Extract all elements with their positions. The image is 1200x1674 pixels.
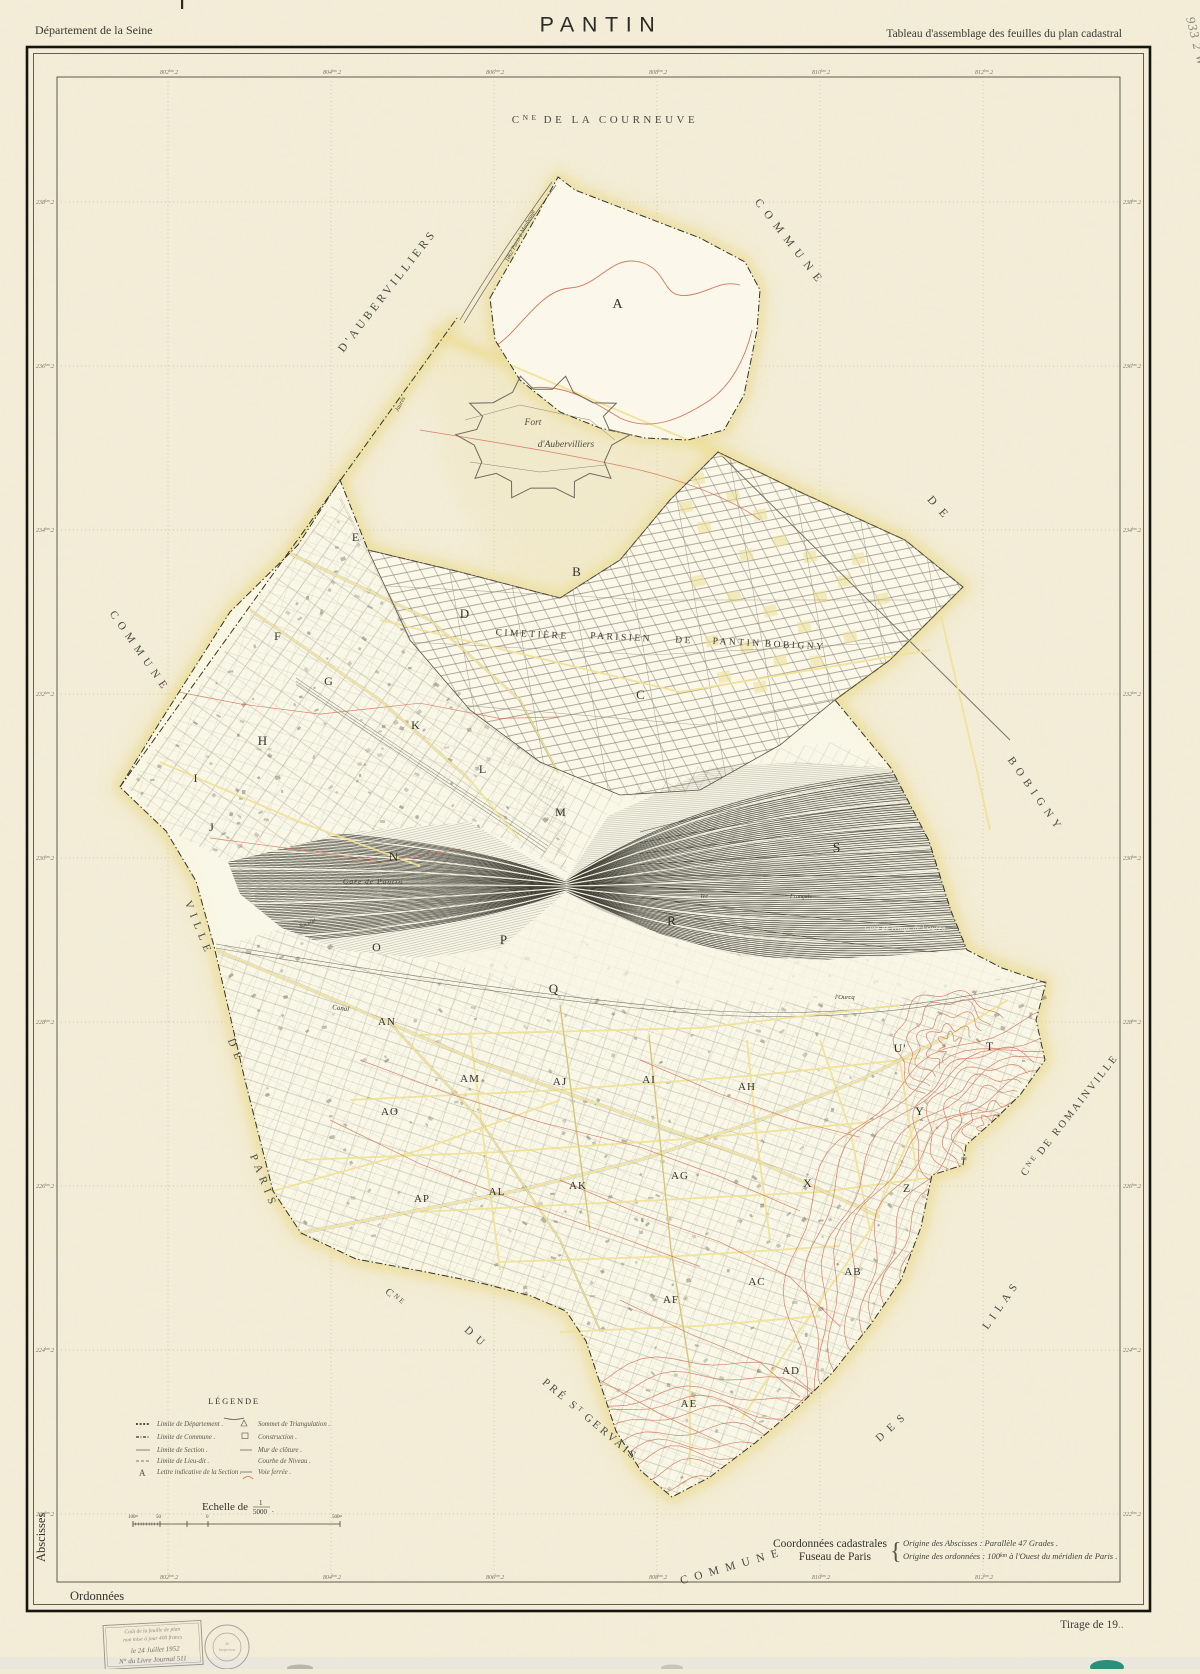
svg-text:LÉGENDE: LÉGENDE bbox=[208, 1396, 260, 1406]
svg-text:Limite de Lieu-dit .: Limite de Lieu-dit . bbox=[156, 1458, 209, 1465]
svg-text:Origine des Abscisses : Parall: Origine des Abscisses : Parallèle 47 Gra… bbox=[903, 1538, 1058, 1548]
svg-text:F: F bbox=[274, 629, 282, 643]
svg-text:J: J bbox=[209, 820, 215, 834]
svg-text:Y: Y bbox=[915, 1104, 925, 1118]
svg-text:B: B bbox=[572, 564, 582, 579]
svg-text:D: D bbox=[460, 606, 470, 621]
svg-text:U': U' bbox=[894, 1041, 907, 1055]
svg-text:2e: 2e bbox=[225, 1641, 229, 1646]
svg-text:DE: DE bbox=[675, 636, 693, 647]
svg-text:AB: AB bbox=[844, 1266, 861, 1278]
svg-text:A: A bbox=[139, 1468, 146, 1478]
svg-text:E: E bbox=[352, 530, 360, 544]
svg-text:AM: AM bbox=[460, 1073, 480, 1085]
svg-text:5000: 5000 bbox=[253, 1508, 268, 1516]
svg-text:PANTIN: PANTIN bbox=[540, 13, 663, 37]
svg-text:P: P bbox=[500, 932, 508, 947]
svg-text:Coordonnées cadastrales: Coordonnées cadastrales bbox=[773, 1538, 888, 1550]
svg-text:Ordonnées: Ordonnées bbox=[70, 1589, 124, 1603]
svg-text:Fort: Fort bbox=[524, 418, 542, 428]
svg-text:50: 50 bbox=[156, 1515, 162, 1520]
svg-text:Mur de clôture .: Mur de clôture . bbox=[257, 1447, 302, 1454]
svg-text:Fuseau de Paris: Fuseau de Paris bbox=[799, 1551, 872, 1563]
svg-text:S: S bbox=[833, 841, 842, 856]
svg-text:Français: Français bbox=[789, 894, 812, 900]
svg-text:Lettre indicative de la Sectio: Lettre indicative de la Section . bbox=[156, 1469, 242, 1476]
svg-text:AI: AI bbox=[642, 1074, 656, 1086]
svg-text:AL: AL bbox=[489, 1186, 506, 1198]
svg-text:AE: AE bbox=[681, 1398, 698, 1410]
svg-text:Sommet de Triangulation .: Sommet de Triangulation . bbox=[258, 1421, 330, 1428]
svg-text:Courbe de Niveau .: Courbe de Niveau . bbox=[258, 1458, 311, 1465]
svg-text:O: O bbox=[372, 940, 382, 954]
svg-text:AK: AK bbox=[569, 1180, 587, 1192]
svg-text:AH: AH bbox=[738, 1081, 756, 1093]
svg-text:H: H bbox=[258, 733, 268, 748]
svg-text:Tirage de 19..: Tirage de 19.. bbox=[1060, 1619, 1124, 1631]
svg-text:Q: Q bbox=[549, 981, 559, 996]
svg-text:Abscisses: Abscisses bbox=[34, 1513, 48, 1562]
svg-text:Gare de Triage de l'Ourcq: Gare de Triage de l'Ourcq bbox=[865, 925, 946, 932]
svg-text:T: T bbox=[986, 1039, 994, 1053]
svg-text:Département de la Seine: Département de la Seine bbox=[35, 23, 153, 37]
svg-text:Construction .: Construction . bbox=[258, 1434, 297, 1441]
svg-text:Gare de Pantin: Gare de Pantin bbox=[343, 877, 403, 886]
svg-text:K: K bbox=[411, 718, 421, 732]
svg-text:AF: AF bbox=[663, 1294, 679, 1306]
svg-text:AO: AO bbox=[381, 1106, 399, 1118]
svg-text:d'Aubervilliers: d'Aubervilliers bbox=[538, 440, 595, 450]
svg-text:Limite de Département .: Limite de Département . bbox=[156, 1421, 223, 1428]
svg-text:C: C bbox=[636, 687, 646, 702]
svg-text:M: M bbox=[555, 805, 567, 819]
svg-text:X: X bbox=[803, 1176, 813, 1190]
svg-text:{: { bbox=[890, 1539, 902, 1565]
svg-text:N: N bbox=[389, 849, 399, 864]
svg-text:A: A bbox=[612, 297, 623, 312]
svg-text:AG: AG bbox=[671, 1170, 689, 1182]
svg-text:AP: AP bbox=[414, 1193, 430, 1205]
svg-text:G: G bbox=[324, 674, 334, 688]
svg-text:.: . bbox=[272, 1506, 274, 1514]
svg-text:Voie ferrée .: Voie ferrée . bbox=[258, 1469, 291, 1476]
svg-text:Inspection: Inspection bbox=[219, 1648, 235, 1652]
svg-text:l'Ourcq: l'Ourcq bbox=[835, 994, 855, 1001]
svg-text:Echelle de: Echelle de bbox=[202, 1501, 248, 1513]
svg-text:AN: AN bbox=[378, 1016, 396, 1028]
svg-text:1: 1 bbox=[259, 1499, 263, 1507]
svg-text:AC: AC bbox=[748, 1276, 765, 1288]
svg-text:Limite de Section .: Limite de Section . bbox=[156, 1447, 208, 1454]
svg-text:Z: Z bbox=[903, 1181, 911, 1195]
svg-text:Tableau d'assemblage des feuil: Tableau d'assemblage des feuilles du pla… bbox=[886, 28, 1122, 40]
svg-text:Limite de Commune .: Limite de Commune . bbox=[156, 1434, 215, 1441]
svg-text:AD: AD bbox=[782, 1365, 800, 1377]
svg-text:L: L bbox=[479, 762, 487, 776]
svg-text:AJ: AJ bbox=[553, 1076, 567, 1088]
svg-text:R: R bbox=[667, 913, 677, 928]
svg-text:Origine des ordonnées : 100km: Origine des ordonnées : 100km à l'Ouest … bbox=[903, 1551, 1117, 1561]
svg-text:I: I bbox=[194, 771, 199, 785]
svg-text:Tec: Tec bbox=[700, 894, 708, 900]
